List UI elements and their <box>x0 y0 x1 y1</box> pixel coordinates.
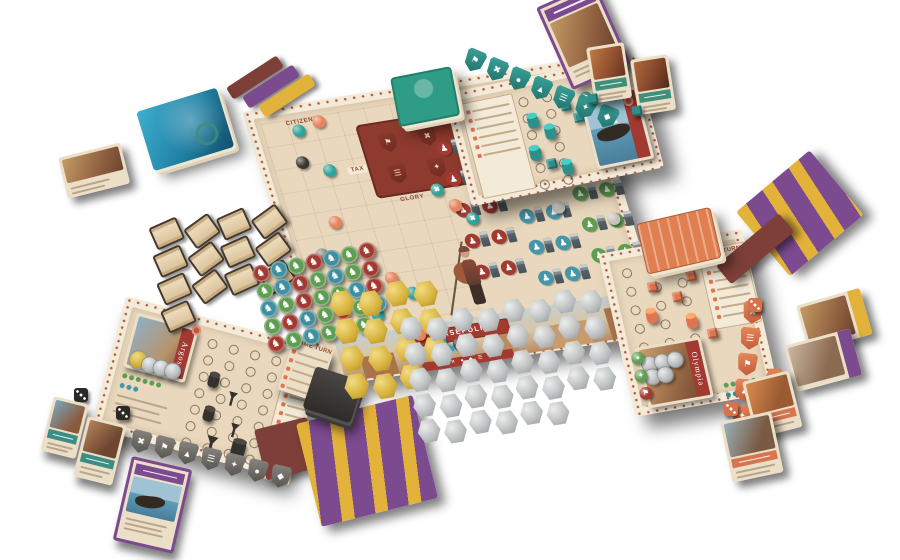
green-seal-icon <box>193 119 222 148</box>
silver-coin <box>560 339 588 367</box>
shield-icon: ◆ <box>276 470 285 482</box>
track-hole <box>545 108 557 120</box>
track-hole <box>236 399 248 411</box>
cavalry-token: ♞ <box>266 333 286 353</box>
silver-coin <box>504 322 532 350</box>
silver-coin <box>411 391 439 419</box>
track-hole <box>266 371 278 383</box>
orange-cube-piece <box>685 270 697 281</box>
progress-marker-token: ✖ <box>465 211 482 226</box>
track-hole <box>219 376 231 388</box>
card-art <box>788 335 846 386</box>
horse-icon: ♞ <box>284 316 295 329</box>
horse-icon: ♞ <box>259 284 270 297</box>
horse-icon: ♞ <box>273 263 284 276</box>
card-art <box>589 45 625 80</box>
black-die <box>74 388 88 402</box>
teal-cube-piece <box>546 158 558 170</box>
shield-icon: ● <box>254 465 262 476</box>
gray-shield-token: ◆ <box>268 463 293 490</box>
gray-shield-token: ▲ <box>175 440 200 467</box>
silver-coin <box>518 399 546 427</box>
horse-icon: ♞ <box>308 255 319 268</box>
silver-coin <box>484 357 512 385</box>
shield-icon: ☰ <box>557 91 569 104</box>
shield-icon: ▲ <box>182 447 193 459</box>
silver-coin <box>526 297 554 325</box>
track-hole <box>193 387 205 399</box>
progress-marker-token <box>327 215 344 230</box>
silver-coin <box>555 313 583 341</box>
progress-marker-token <box>311 114 328 129</box>
gold-coin <box>370 371 400 401</box>
gray-shield-token: ☰ <box>198 445 223 472</box>
cavalry-token: ♞ <box>290 273 310 293</box>
progress-marker-token <box>291 124 308 139</box>
olympia-city-card: Olympia ● ✦ ⚑ <box>635 337 714 409</box>
horse-icon: ♞ <box>280 298 291 311</box>
gold-coin <box>356 288 386 318</box>
cavalry-token: ♞ <box>276 294 296 314</box>
silver-coin <box>586 339 614 367</box>
card-art <box>49 400 85 434</box>
silver-coin <box>428 341 456 369</box>
orange-cube-piece <box>707 328 719 339</box>
cavalry-token: ♞ <box>303 252 323 272</box>
boardgame-tabletop-photo: CITIZENS TAX GLORY TROOPS ⚑✖▲☰✦● ♟♟♟♟♟♟♟… <box>0 0 900 560</box>
argos-resource-beads-blue <box>119 383 139 393</box>
track-hole <box>244 366 256 378</box>
track-hole <box>261 388 273 400</box>
cavalry-token: ♞ <box>339 244 359 264</box>
track-hole <box>270 355 282 367</box>
track-hole <box>630 305 642 316</box>
track-hole <box>562 174 574 186</box>
cavalry-token: ♞ <box>325 265 345 285</box>
tan-art-card-left <box>58 143 130 199</box>
shield-icon: ● <box>514 74 523 85</box>
silver-coin <box>415 417 443 445</box>
progress-marker-token <box>447 198 464 213</box>
horse-icon: ♞ <box>343 248 354 261</box>
teal-shield-token: ⚑ <box>461 46 488 75</box>
track-hole <box>659 319 671 330</box>
blue-card-deck <box>136 87 234 171</box>
cavalry-token: ♞ <box>254 280 274 300</box>
turn-step-row <box>281 402 305 412</box>
silver-coin <box>402 340 430 368</box>
progress-marker-token: ✖ <box>429 183 446 198</box>
cavalry-token: ♞ <box>342 262 362 282</box>
track-hole <box>625 286 637 297</box>
track-hole <box>206 338 218 350</box>
silver-coin <box>448 306 476 334</box>
card-art <box>82 420 123 459</box>
orange-die <box>724 402 738 416</box>
scroll-tile <box>250 203 288 240</box>
cavalry-token: ♞ <box>258 298 278 318</box>
silver-coin <box>535 348 563 376</box>
track-hole <box>554 141 566 153</box>
shield-icon: ✦ <box>229 459 239 471</box>
silver-coin <box>582 314 610 342</box>
cavalry-token: ♞ <box>360 258 380 278</box>
progress-marker-token <box>294 155 311 170</box>
horse-icon: ♞ <box>288 333 299 346</box>
teal-panel-rows <box>464 102 523 159</box>
horse-icon: ♞ <box>361 244 372 257</box>
purple-event-card-bottom <box>113 456 193 554</box>
track-hole <box>517 96 529 108</box>
silver-coin <box>442 417 470 445</box>
shield-icon: ☰ <box>745 332 754 344</box>
horse-icon: ♞ <box>347 266 358 279</box>
silver-coin <box>437 392 465 420</box>
track-hole <box>634 323 646 334</box>
horse-icon: ♞ <box>365 262 376 275</box>
orange-shield-token: ☰ <box>739 326 761 351</box>
silver-coin <box>406 366 434 394</box>
gold-coin <box>382 279 412 309</box>
silver-coin <box>397 315 425 343</box>
token-glyph: ✖ <box>469 215 477 223</box>
cavalry-token: ♞ <box>321 248 341 268</box>
cavalry-token: ♞ <box>297 308 317 328</box>
cavalry-token: ♞ <box>293 291 313 311</box>
gold-coin <box>365 344 395 374</box>
track-hole <box>534 162 546 174</box>
track-hole <box>223 360 235 372</box>
progress-marker-token <box>550 200 567 215</box>
track-hole <box>539 179 551 191</box>
cavalry-token: ♞ <box>286 255 306 275</box>
horse-icon: ♞ <box>294 277 305 290</box>
argos-title: Argos <box>175 341 190 367</box>
track-hole <box>184 420 196 432</box>
track-hole <box>240 382 252 394</box>
silver-coin <box>457 357 485 385</box>
token-glyph: ✖ <box>433 186 441 194</box>
gray-shield-token: ⚑ <box>152 434 177 461</box>
silver-coin <box>591 365 619 393</box>
card-art <box>633 57 669 92</box>
silver-coin <box>488 383 516 411</box>
silver-coin <box>500 297 528 325</box>
silver-coin <box>475 306 503 334</box>
teal-cube-marker <box>587 93 598 104</box>
bonus-card-purple <box>784 328 862 392</box>
orange-cube-piece <box>647 281 659 292</box>
track-hole <box>526 129 538 141</box>
horse-icon: ♞ <box>312 273 323 286</box>
horse-icon: ♞ <box>302 312 313 325</box>
silver-coin <box>466 408 494 436</box>
horse-icon: ♞ <box>326 252 337 265</box>
shield-icon: ☰ <box>206 453 216 466</box>
cavalry-token: ♞ <box>272 277 292 297</box>
cavalry-token: ♞ <box>279 312 299 332</box>
horse-icon: ♞ <box>305 330 316 343</box>
cavalry-token: ♞ <box>268 259 288 279</box>
horse-icon: ♞ <box>315 291 326 304</box>
progress-marker-token <box>605 211 622 226</box>
shield-icon: ✖ <box>136 435 146 447</box>
cavalry-token: ♞ <box>283 330 303 350</box>
gray-shield-token: ● <box>245 457 270 484</box>
shield-icon: ⚑ <box>469 54 481 67</box>
shield-icon: ⚑ <box>159 441 169 454</box>
gray-shield-token: ✖ <box>128 428 153 455</box>
track-hole <box>655 300 667 311</box>
gold-coin <box>327 288 357 318</box>
silver-coin <box>540 374 568 402</box>
silver-coin <box>513 373 541 401</box>
horse-icon: ♞ <box>298 294 309 307</box>
gray-shield-token: ✦ <box>222 451 247 478</box>
shield-icon: ▲ <box>535 82 547 95</box>
silver-coin <box>577 288 605 316</box>
horse-icon: ♞ <box>276 280 287 293</box>
black-die <box>116 406 130 420</box>
horse-icon: ♞ <box>263 302 274 315</box>
cavalry-token: ♞ <box>307 269 327 289</box>
gold-coin <box>360 316 390 346</box>
silver-coin <box>493 408 521 436</box>
gold-coin <box>332 316 362 346</box>
shield-icon: ⚑ <box>743 358 752 370</box>
shield-icon: ◆ <box>602 110 613 123</box>
orange-cube-piece <box>672 291 684 302</box>
cavalry-token: ♞ <box>356 240 376 260</box>
teal-cube-marker <box>631 105 642 116</box>
silver-coin <box>551 288 579 316</box>
silver-coin <box>544 399 572 427</box>
silver-coin <box>433 366 461 394</box>
progress-marker-token <box>321 163 338 178</box>
orange-shield-token: ⚑ <box>736 352 758 377</box>
track-hole <box>249 349 261 361</box>
silver-coin <box>509 348 537 376</box>
track-hole <box>214 393 226 405</box>
card-art <box>62 146 124 183</box>
shield-icon: ✖ <box>491 63 502 76</box>
cavalry-token: ♞ <box>301 326 321 346</box>
track-hole <box>189 404 201 416</box>
horse-icon: ♞ <box>329 269 340 282</box>
silver-coin <box>531 323 559 351</box>
gold-coin <box>342 371 372 401</box>
track-hole <box>621 268 633 279</box>
silver-coin <box>564 364 592 392</box>
cavalry-token: ♞ <box>251 263 271 283</box>
track-hole <box>202 354 214 366</box>
orange-die <box>748 298 762 312</box>
silver-coin <box>453 331 481 359</box>
track-hole <box>257 404 269 416</box>
silver-coin <box>479 332 507 360</box>
cavalry-token: ♞ <box>262 316 282 336</box>
silver-coin <box>424 315 452 343</box>
horse-icon: ♞ <box>270 337 281 350</box>
horse-icon: ♞ <box>255 267 266 280</box>
gold-coin <box>337 343 367 373</box>
silver-coin <box>462 382 490 410</box>
track-hole <box>228 344 240 356</box>
horse-icon: ♞ <box>266 319 277 332</box>
horse-icon: ♞ <box>290 259 301 272</box>
gold-coin <box>411 279 441 309</box>
